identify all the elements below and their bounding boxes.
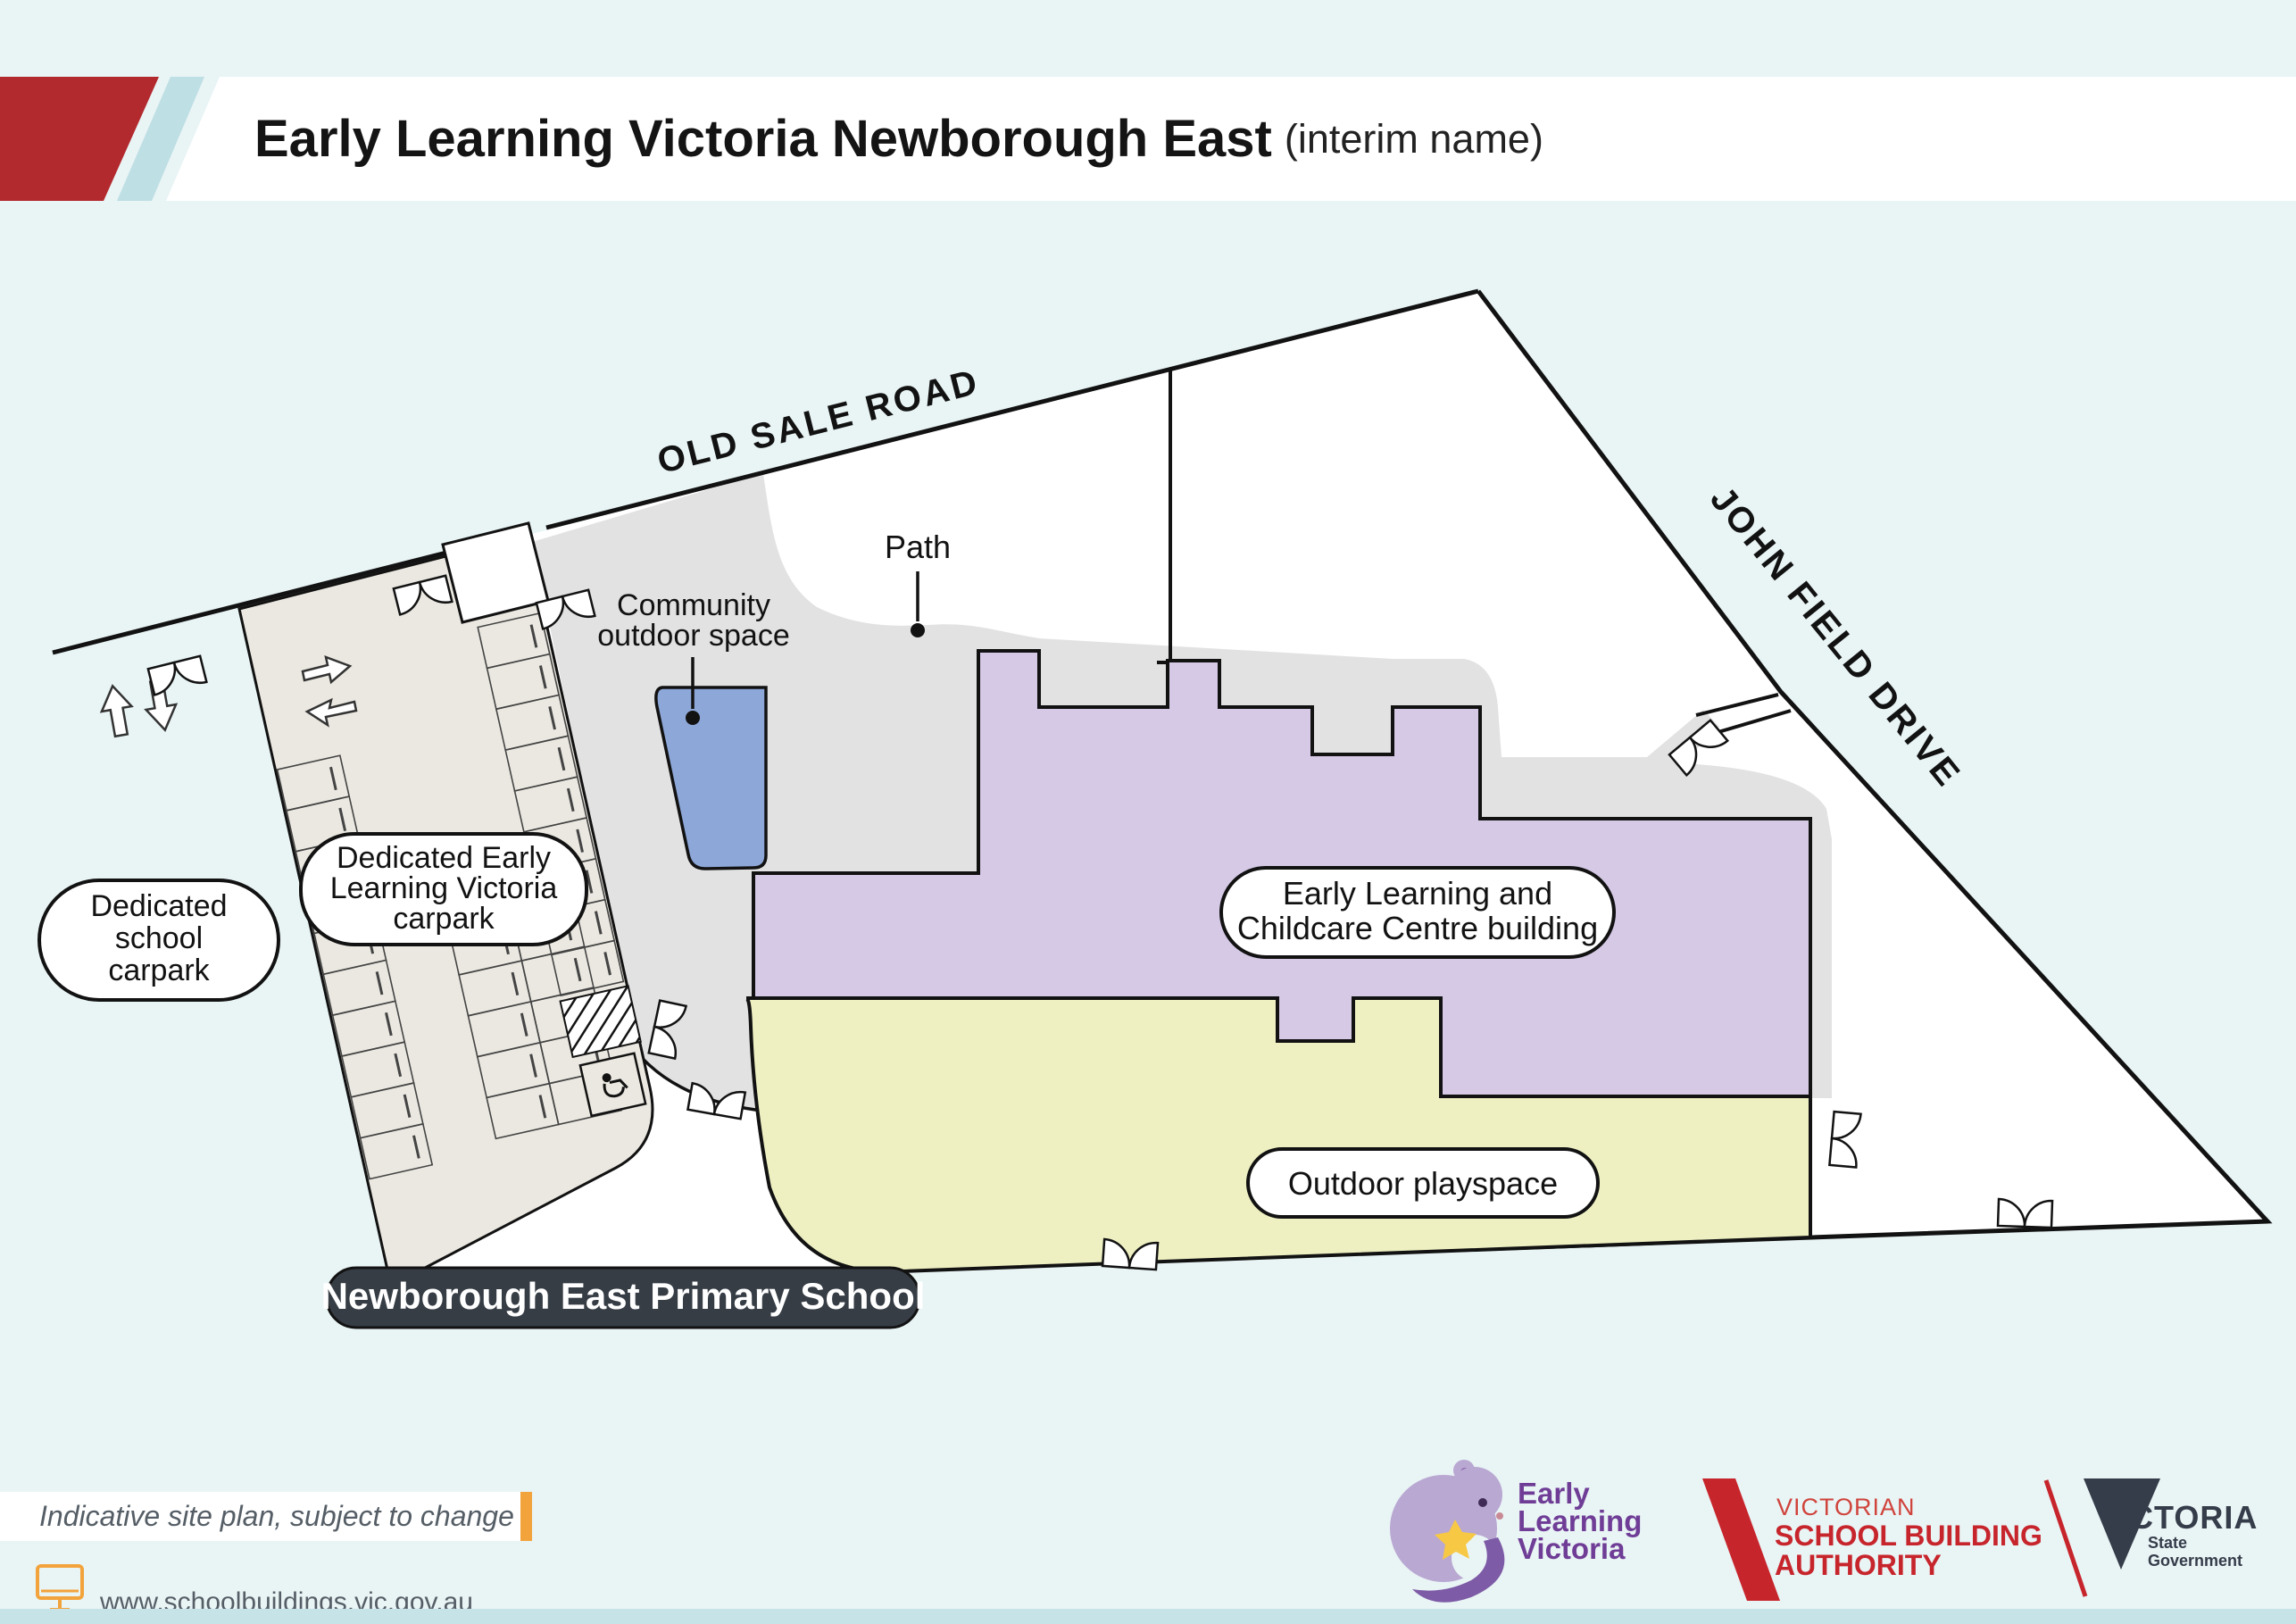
vsba-logo: VICTORIAN SCHOOL BUILDING AUTHORITY (1702, 1478, 2085, 1601)
vsba-text-authority: AUTHORITY (1775, 1549, 1942, 1581)
vsba-text-victorian: VICTORIAN (1776, 1494, 1916, 1520)
possum-nose (1496, 1512, 1503, 1520)
page: Early Learning Victoria Newborough East … (0, 0, 2296, 1624)
vsba-slash-thin (2046, 1480, 2085, 1596)
possum-eye (1478, 1498, 1487, 1507)
vic-text-government: Government (2148, 1552, 2242, 1570)
logos-svg: Early Learning Victoria VICTORIAN SCHOOL… (0, 0, 2296, 1624)
vic-text-victoria: VICTORIA (2098, 1499, 2258, 1536)
vic-gov-logo: VICTORIA State Government (2084, 1478, 2258, 1570)
possum-head (1447, 1467, 1502, 1522)
vic-text-state: State (2148, 1534, 2187, 1552)
vsba-text-school-building: SCHOOL BUILDING (1775, 1520, 2042, 1552)
elv-logo: Early Learning Victoria (1390, 1460, 1642, 1603)
elv-text-line3: Victoria (1518, 1532, 1626, 1565)
vsba-slash-thick (1702, 1478, 1780, 1601)
